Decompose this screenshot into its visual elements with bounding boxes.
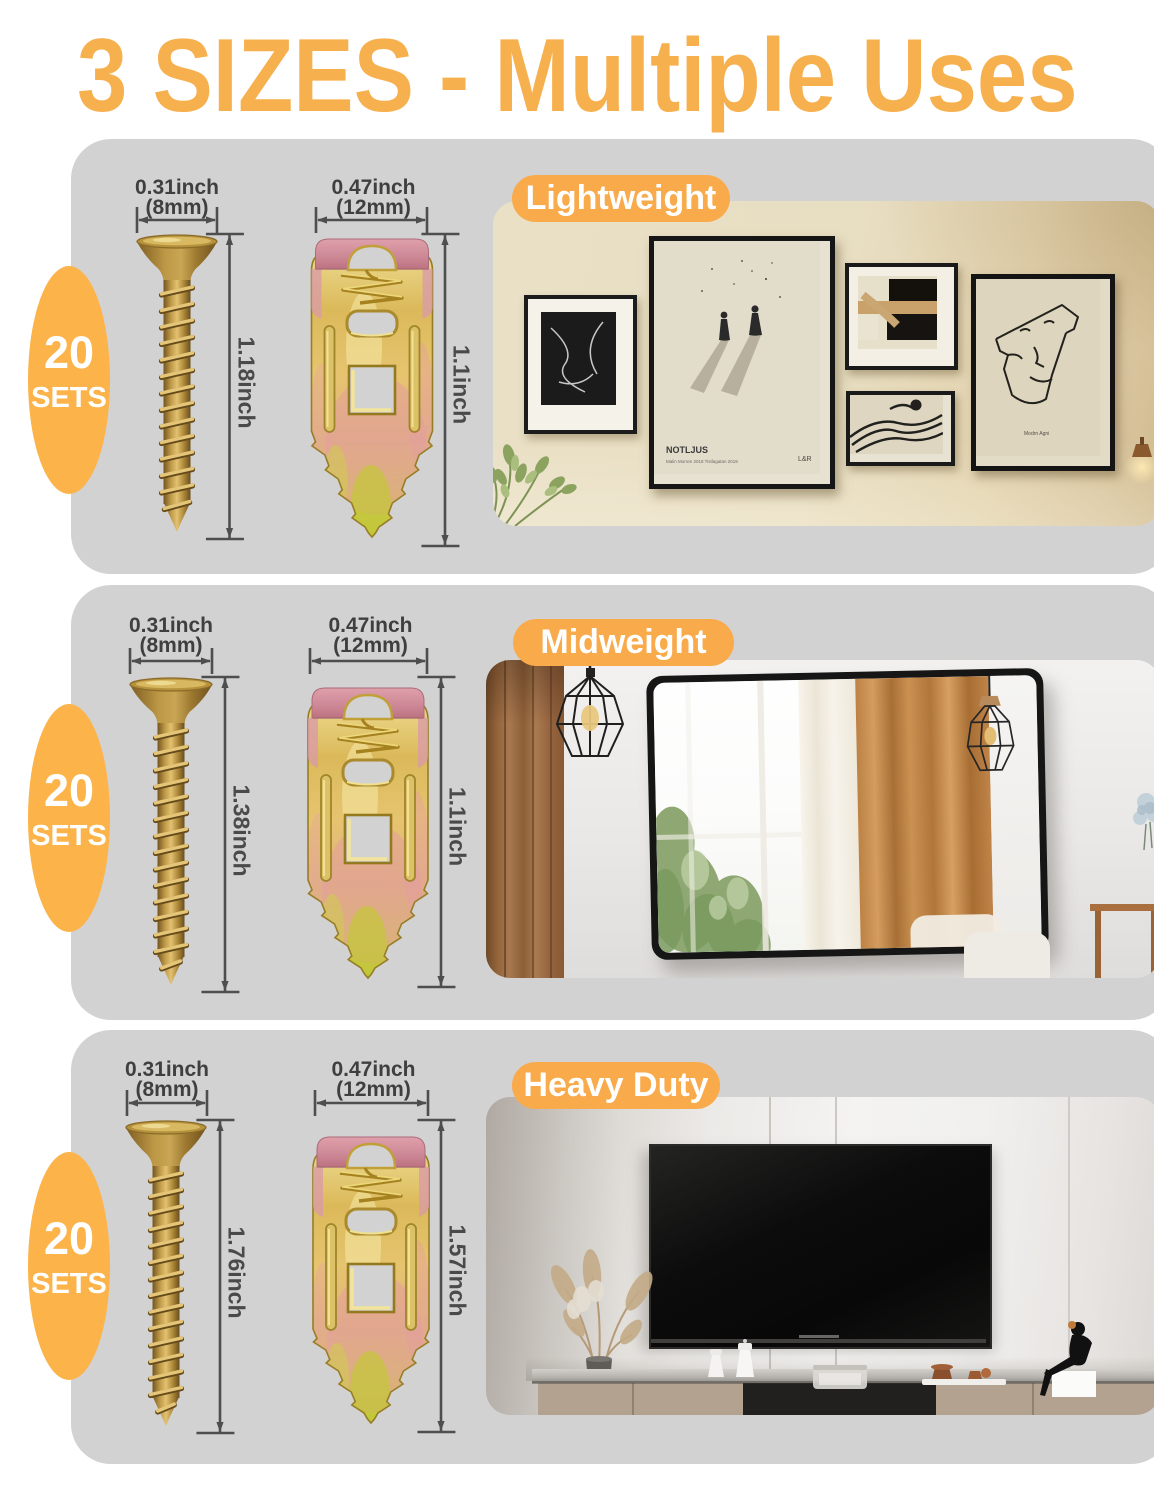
svg-text:Malin Morren 2018 Tistlagata: Malin Morren 2018 Tistlagatan 2019 <box>666 459 738 464</box>
svg-text:L&R: L&R <box>798 456 812 463</box>
svg-text:Modrn Agni: Modrn Agni <box>1024 431 1049 437</box>
svg-text:NOTLJUS: NOTLJUS <box>666 445 708 455</box>
